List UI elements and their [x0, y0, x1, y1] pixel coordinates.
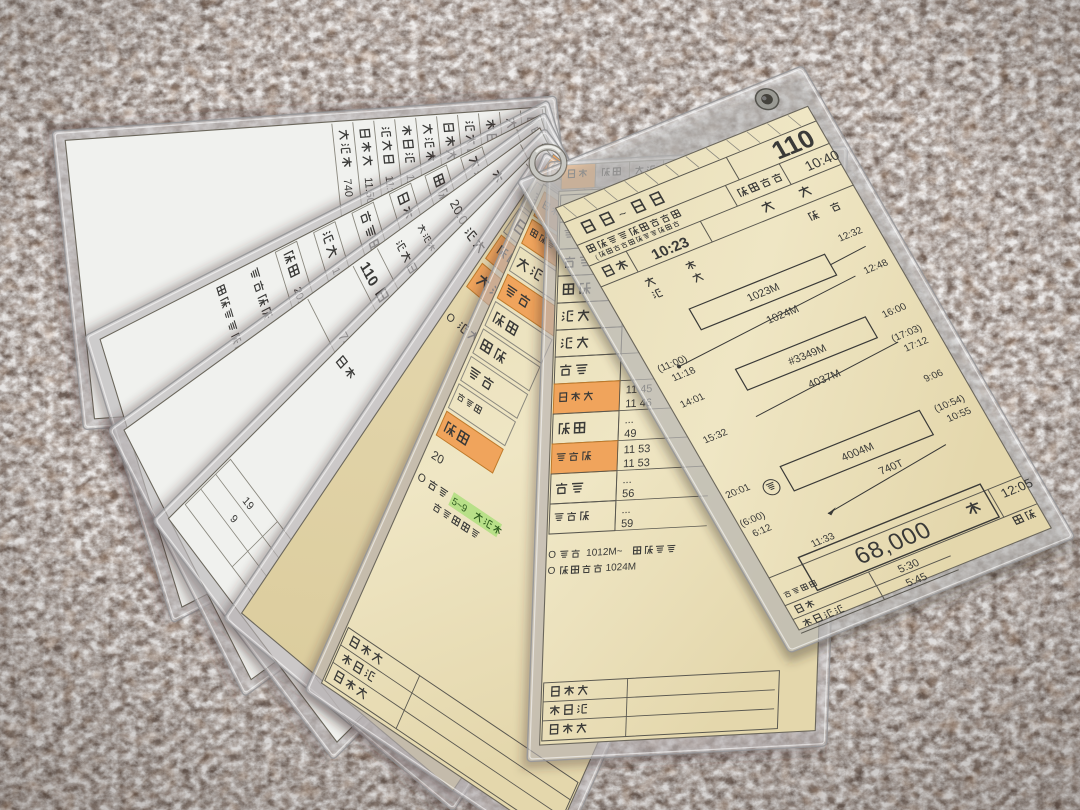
- svg-text:59: 59: [621, 518, 634, 531]
- svg-text:1012M~: 1012M~: [586, 546, 623, 559]
- svg-text:56: 56: [622, 488, 635, 501]
- svg-text:11 53: 11 53: [623, 457, 650, 470]
- svg-text:1024M: 1024M: [605, 561, 636, 574]
- svg-text:O: O: [548, 550, 556, 561]
- svg-text:...: ...: [624, 414, 634, 426]
- svg-text:O: O: [547, 566, 555, 577]
- svg-text:11 53: 11 53: [623, 443, 650, 456]
- svg-text:49: 49: [624, 428, 637, 441]
- svg-text:...: ...: [622, 474, 632, 486]
- svg-text:...: ...: [621, 504, 631, 516]
